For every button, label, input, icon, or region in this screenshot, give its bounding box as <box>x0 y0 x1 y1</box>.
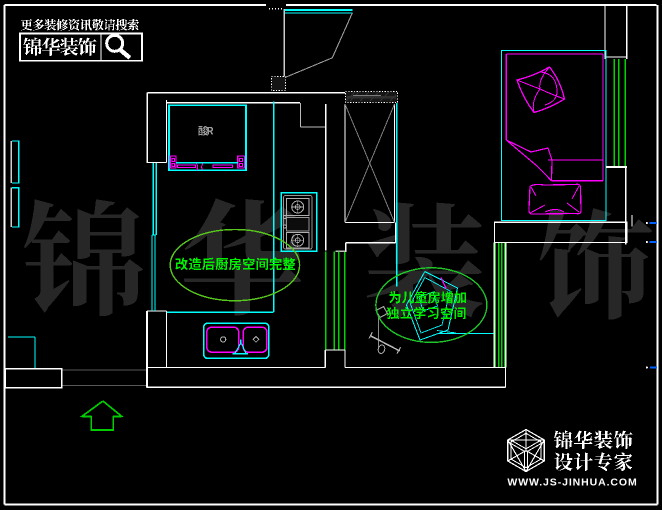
svg-text:WWW.JS-JINHUA.COM: WWW.JS-JINHUA.COM <box>507 477 637 489</box>
